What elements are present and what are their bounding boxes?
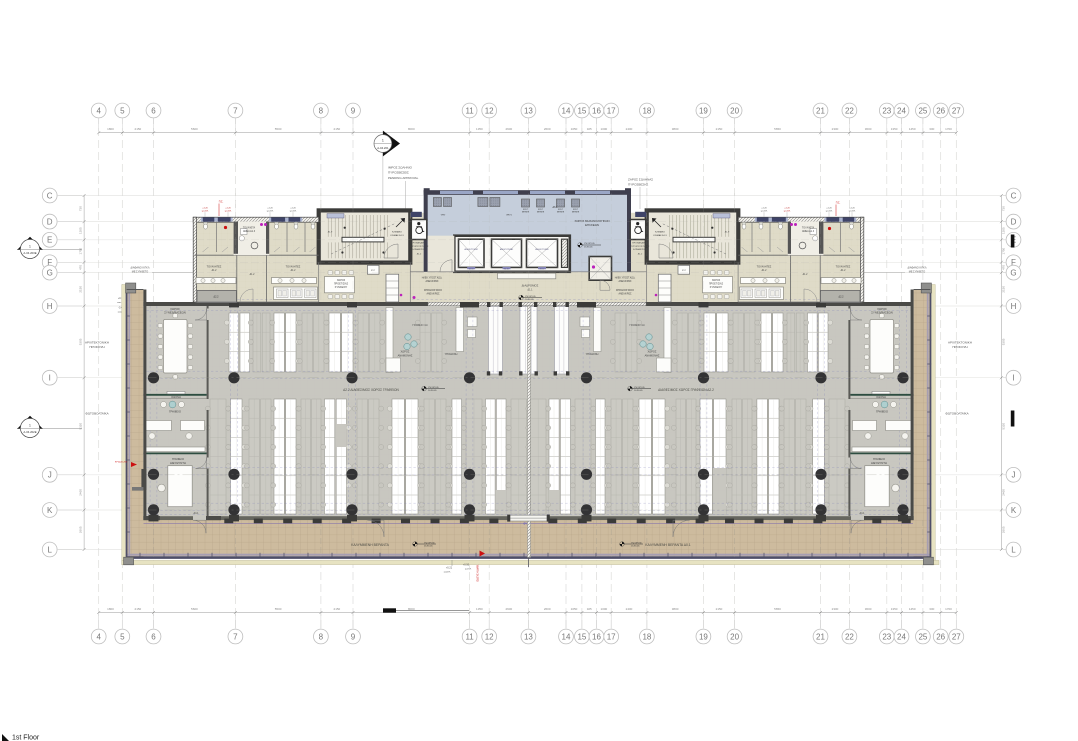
svg-text:12: 12 [485, 106, 494, 115]
svg-text:ΚΥΛΙΚΕΙΟΥ: ΚΥΛΙΚΕΙΟΥ [710, 286, 723, 289]
svg-text:ΚΥΛΙΚΕΙΟΥ: ΚΥΛΙΚΕΙΟΥ [335, 286, 348, 289]
svg-text:325: 325 [587, 127, 592, 131]
svg-text:23: 23 [882, 632, 891, 641]
svg-text:ΑΝΕΛΚΥΣΤΗΡΑΣ: ΑΝΕΛΚΥΣΤΗΡΑΣ [465, 248, 478, 251]
svg-text:8000: 8000 [408, 127, 415, 131]
svg-text:+4.20: +4.20 [225, 207, 231, 209]
svg-text:ψευδ/Λ: ψευδ/Λ [826, 209, 833, 212]
svg-text:ΠΥΡΟΣΒΕΣΕΙΣ: ΠΥΡΟΣΒΕΣΕΙΣ [388, 171, 409, 175]
svg-text:ΧΩΡΟΣ: ΧΩΡΟΣ [647, 350, 656, 354]
svg-text:ψευδ/Λ: ψευδ/Λ [849, 209, 856, 212]
svg-text:5305: 5305 [1002, 338, 1006, 345]
svg-text:ανεΠΛ: ανεΠΛ [465, 569, 472, 571]
svg-text:1700: 1700 [945, 607, 952, 611]
svg-text:2400: 2400 [626, 127, 633, 131]
svg-text:1050: 1050 [571, 127, 578, 131]
svg-text:ΗΛΕΚ.ΥΠΟΣΤ.ΚΩΔ.: ΗΛΕΚ.ΥΠΟΣΤ.ΚΩΔ. [615, 277, 636, 280]
svg-text:1: 1 [382, 139, 384, 143]
svg-text:D: D [1011, 217, 1017, 226]
svg-text:J: J [48, 471, 52, 480]
svg-text:Δ1.9: Δ1.9 [725, 231, 730, 234]
svg-text:ΑΝΕΛΚΥΣΤΗΡΑΣ: ΑΝΕΛΚΥΣΤΗΡΑΣ [535, 248, 548, 251]
svg-text:C: C [47, 191, 53, 200]
svg-text:2600: 2600 [505, 607, 512, 611]
svg-text:470: 470 [1002, 265, 1006, 270]
svg-text:ΟΔΕΥΣΗ ΔΙΑΦ.: ΟΔΕΥΣΗ ΔΙΑΦ. [477, 564, 480, 582]
svg-text:ΓΡΑΦΕΙΟ 1Ω: ΓΡΑΦΕΙΟ 1Ω [412, 323, 427, 327]
svg-text:+4.20: +4.20 [290, 207, 296, 209]
svg-text:D: D [47, 217, 53, 226]
svg-text:Δ2.2: Δ2.2 [839, 296, 845, 299]
svg-text:A-04.202Ε: A-04.202Ε [23, 430, 36, 434]
svg-text:7: 7 [233, 632, 238, 641]
svg-text:4: 4 [96, 106, 101, 115]
svg-text:22: 22 [845, 632, 854, 641]
svg-text:21: 21 [816, 106, 825, 115]
svg-text:H: H [1011, 302, 1017, 311]
svg-text:325: 325 [587, 607, 592, 611]
svg-text:Δ4.1: Δ4.1 [860, 512, 866, 515]
svg-text:ΑΝΑΜΟΝΗΣ: ΑΝΑΜΟΝΗΣ [398, 353, 413, 357]
svg-text:SERVER: SERVER [557, 212, 565, 214]
svg-text:2300: 2300 [832, 607, 839, 611]
svg-text:ψευδ/Λ: ψευδ/Λ [225, 209, 232, 212]
svg-text:17: 17 [607, 106, 616, 115]
svg-text:ΟΘΟΝΗ: ΟΘΟΝΗ [171, 395, 181, 399]
svg-text:13: 13 [524, 106, 533, 115]
svg-text:14: 14 [562, 106, 571, 115]
svg-text:ΔΙΑΘΕΣΙΜΟΣ ΧΩΡΟΣ ΓΡΑΦΕΙΩΝ Δ: ΔΙΑΘΕΣΙΜΟΣ ΧΩΡΟΣ ΓΡΑΦΕΙΩΝ Δ2.2 [658, 388, 714, 392]
svg-text:ΜΕ ΣΥΝΘΕΤΟ: ΜΕ ΣΥΝΘΕΤΟ [909, 270, 926, 273]
svg-text:18: 18 [642, 106, 651, 115]
svg-text:1000: 1000 [601, 127, 608, 131]
svg-text:5650: 5650 [774, 127, 781, 131]
svg-text:2150: 2150 [135, 607, 142, 611]
svg-text:3800: 3800 [672, 127, 679, 131]
svg-text:5320: 5320 [1002, 423, 1006, 430]
svg-text:ΤΟΥΑΛΗΤΕΣ: ΤΟΥΑΛΗΤΕΣ [757, 266, 772, 269]
svg-text:16: 16 [592, 632, 601, 641]
svg-text:ΔΙΑΔΡΟΜΟΣ: ΔΙΑΔΡΟΜΟΣ [522, 283, 539, 287]
svg-text:ΑΝΕΛΚΥΣΤΗΡΑΣ: ΑΝΕΛΚΥΣΤΗΡΑΣ [500, 248, 513, 251]
svg-text:ΚΛΙΜΑΚΟ: ΚΛΙΜΑΚΟ [655, 231, 665, 234]
svg-text:ψευδ/Λ: ψευδ/Λ [784, 209, 791, 212]
svg-text:Δ1.2: Δ1.2 [841, 269, 846, 272]
svg-text:ΑΡΧΙΤΕΚΤΟΝΙΚΗ: ΑΡΧΙΤΕΚΤΟΝΙΚΗ [948, 341, 972, 345]
svg-text:23: 23 [882, 106, 891, 115]
svg-text:15: 15 [577, 632, 586, 641]
svg-text:2600: 2600 [505, 127, 512, 131]
svg-text:27: 27 [952, 632, 961, 641]
svg-text:16.90.45: 16.90.45 [525, 299, 534, 301]
svg-text:ΠΡΟΘΑΛΑΜΟΣ: ΠΡΟΘΑΛΑΜΟΣ [411, 242, 427, 245]
svg-text:5600: 5600 [191, 127, 198, 131]
svg-text:ΖΑΡΟΣ ΣΩΛΗΝΑΣ: ΖΑΡΟΣ ΣΩΛΗΝΑΣ [628, 178, 653, 182]
svg-text:22: 22 [845, 106, 854, 115]
svg-text:300: 300 [929, 127, 934, 131]
svg-text:ΑΝΕΛΚ/ΡΩΣ: ΑΝΕΛΚ/ΡΩΣ [426, 293, 440, 296]
svg-text:27: 27 [952, 106, 961, 115]
svg-text:ΥΨ.ΟΡΟΦ.: ΥΨ.ΟΡΟΦ. [634, 386, 646, 389]
svg-text:16.90.45: 16.90.45 [634, 390, 643, 392]
svg-text:1450: 1450 [909, 607, 916, 611]
svg-text:1000: 1000 [601, 607, 608, 611]
svg-text:730: 730 [1002, 206, 1006, 211]
svg-text:3600: 3600 [865, 607, 872, 611]
svg-text:ΓΡΑΦΕΙΟ 1Ω: ΓΡΑΦΕΙΟ 1Ω [629, 323, 644, 327]
svg-text:ΑΝΑΜΟΝΗΣ: ΑΝΑΜΟΝΗΣ [645, 353, 660, 357]
svg-text:5: 5 [120, 106, 125, 115]
svg-text:+0.50: +0.50 [463, 564, 470, 567]
svg-text:VRV1: VRV1 [506, 215, 512, 217]
svg-text:2150: 2150 [716, 607, 723, 611]
svg-text:L: L [47, 545, 52, 554]
svg-text:ΥΨ.ΟΡΟΦ.: ΥΨ.ΟΡΟΦ. [584, 242, 596, 245]
svg-text:470: 470 [79, 265, 83, 270]
svg-text:ΗΛΕΚ.ΥΠΟΣΤ.ΚΩΔ.: ΗΛΕΚ.ΥΠΟΣΤ.ΚΩΔ. [422, 277, 443, 280]
svg-text:ΥΨ.ΟΡΟΦ.: ΥΨ.ΟΡΟΦ. [631, 542, 643, 545]
svg-text:5500: 5500 [275, 607, 282, 611]
svg-text:2600: 2600 [544, 607, 551, 611]
svg-text:21: 21 [816, 632, 825, 641]
svg-text:ΜΗΧΑΝΟΣΤΑΣΙΟ: ΜΗΧΑΝΟΣΤΑΣΙΟ [616, 289, 634, 292]
svg-text:1800: 1800 [107, 127, 114, 131]
svg-text:ΔΙΕΥΘΥΝΤΗ: ΔΙΕΥΘΥΝΤΗ [170, 461, 186, 465]
svg-text:2150: 2150 [135, 127, 142, 131]
svg-text:1050: 1050 [571, 607, 578, 611]
svg-text:ΚΑΛΥΜΜΕΝΗ ΒΕΡΑΝΤΑ Δ0.1: ΚΑΛΥΜΜΕΝΗ ΒΕΡΑΝΤΑ Δ0.1 [645, 543, 691, 547]
svg-text:8: 8 [319, 632, 324, 641]
svg-text:ΓΡΑΦΕΙΟ: ΓΡΑΦΕΙΟ [169, 410, 182, 414]
svg-text:1305: 1305 [1002, 227, 1006, 234]
svg-text:K: K [1011, 506, 1017, 515]
svg-text:6: 6 [151, 106, 156, 115]
svg-text:ΠΥΡΟΠΡΟΣΤ/ΣΙΑΣ: ΠΥΡΟΠΡΟΣΤ/ΣΙΑΣ [630, 245, 650, 248]
svg-text:L: L [1011, 545, 1016, 554]
svg-text:ΤΟΥΑΛΗΤΕΣ: ΤΟΥΑΛΗΤΕΣ [286, 266, 301, 269]
svg-text:ΔΙΑΦΑΝΟ ΚΙΓΚΛ: ΔΙΑΦΑΝΟ ΚΙΓΚΛ [130, 266, 149, 269]
svg-text:ΦΩΤΟΒΟΛΤΑΪΚΑ: ΦΩΤΟΒΟΛΤΑΪΚΑ [945, 412, 968, 416]
svg-text:Δ1.2: Δ1.2 [762, 269, 767, 272]
svg-text:3600: 3600 [865, 127, 872, 131]
svg-text:1750: 1750 [79, 247, 83, 254]
svg-text:5650: 5650 [774, 607, 781, 611]
svg-text:2600: 2600 [544, 127, 551, 131]
svg-text:ΟΘΟΝΗ: ΟΘΟΝΗ [876, 395, 886, 399]
svg-text:ΜΗΧΑΝΟΣΤΑΣΙΟ: ΜΗΧΑΝΟΣΤΑΣΙΟ [424, 289, 442, 292]
svg-text:ΚΛΙΜΑΚ Δ1.3: ΚΛΙΜΑΚ Δ1.3 [390, 234, 404, 237]
svg-text:2460: 2460 [1002, 489, 1006, 496]
svg-text:ΚΡ Α-05.250: ΚΡ Α-05.250 [115, 461, 128, 464]
svg-text:C: C [1011, 191, 1017, 200]
svg-text:9: 9 [351, 632, 356, 641]
svg-text:17: 17 [607, 632, 616, 641]
svg-text:ΠΡΟΣΟΨΗ: ΠΡΟΣΟΨΗ [89, 345, 104, 349]
svg-text:Δ2.2: Δ2.2 [214, 296, 220, 299]
svg-text:ΔΙΑΦΑΝΟ ΚΙΓΚΛ: ΔΙΑΦΑΝΟ ΚΙΓΚΛ [907, 266, 926, 269]
svg-text:1350: 1350 [476, 607, 483, 611]
svg-text:+4.20: +4.20 [267, 207, 273, 209]
svg-text:SERVER: SERVER [572, 212, 580, 214]
svg-text:PENDING APPROVAL: PENDING APPROVAL [388, 176, 419, 180]
svg-text:SERVER: SERVER [537, 212, 545, 214]
svg-text:19: 19 [699, 632, 708, 641]
svg-text:7: 7 [233, 106, 238, 115]
svg-text:ΑΜΕΑ Δ1.3: ΑΜΕΑ Δ1.3 [243, 230, 256, 233]
svg-text:1: 1 [29, 424, 31, 428]
svg-text:Δ1.10: Δ1.10 [540, 267, 544, 270]
svg-text:ΚΛΙΜΑΚΟ: ΚΛΙΜΑΚΟ [392, 231, 402, 234]
svg-text:13: 13 [524, 632, 533, 641]
svg-text:G: G [47, 268, 53, 277]
svg-text:2665: 2665 [1002, 526, 1006, 533]
svg-text:9: 9 [351, 106, 356, 115]
svg-text:+4.20: +4.20 [202, 207, 208, 209]
svg-text:1350: 1350 [891, 607, 898, 611]
svg-text:19: 19 [699, 106, 708, 115]
svg-text:+4.20: +4.20 [761, 207, 767, 209]
svg-text:16.90.45: 16.90.45 [428, 390, 437, 392]
svg-text:ΧΩΡΟΣ: ΧΩΡΟΣ [400, 350, 409, 354]
svg-text:2300: 2300 [832, 127, 839, 131]
svg-text:ψευδ/Λ: ψευδ/Λ [290, 209, 297, 212]
svg-text:1450: 1450 [909, 127, 916, 131]
svg-text:ΚΛΙΜΑΚ Δ1.3: ΚΛΙΜΑΚ Δ1.3 [653, 234, 667, 237]
svg-text:Δ1.10: Δ1.10 [504, 267, 508, 270]
svg-text:ΠΡΟΘΑΛΑΜΟΣ: ΠΡΟΘΑΛΑΜΟΣ [632, 242, 648, 245]
svg-text:ΑΝΕΛΚ/ΡΩΣ: ΑΝΕΛΚ/ΡΩΣ [618, 280, 632, 283]
svg-text:ΔΙΕΥΘΥΝΤΗ: ΔΙΕΥΘΥΝΤΗ [871, 461, 887, 465]
svg-text:1800: 1800 [107, 607, 114, 611]
svg-text:Δ6.1: Δ6.1 [553, 206, 559, 209]
svg-text:2150: 2150 [1002, 286, 1006, 293]
svg-text:16: 16 [592, 106, 601, 115]
svg-text:E: E [47, 236, 52, 245]
svg-text:ΕΓΚ/ΣΕΩΝ: ΕΓΚ/ΣΕΩΝ [585, 223, 599, 227]
svg-text:16.90.45: 16.90.45 [631, 546, 640, 548]
svg-text:16.90.45: 16.90.45 [424, 546, 433, 548]
svg-text:2150: 2150 [334, 607, 341, 611]
svg-text:K: K [47, 506, 53, 515]
svg-text:Δ1.2: Δ1.2 [417, 253, 422, 256]
svg-text:Δ1.2: Δ1.2 [250, 273, 255, 276]
svg-text:I: I [1012, 374, 1014, 383]
svg-text:ΚΑΛΥΜΜΕΝΗ ΒΕΡΑΝΤΑ: ΚΑΛΥΜΜΕΝΗ ΒΕΡΑΝΤΑ [351, 543, 390, 547]
svg-text:ΣΥΝΕΔΡΙΑΣΕΩΝ: ΣΥΝΕΔΡΙΑΣΕΩΝ [164, 311, 186, 315]
svg-text:ψευδ/Λ: ψευδ/Λ [202, 209, 209, 212]
svg-text:ψευδ/Λ: ψευδ/Λ [761, 209, 768, 212]
svg-text:18: 18 [642, 632, 651, 641]
svg-text:ΙΜΡΟΣ ΣΩΛΗΝΙΟ: ΙΜΡΟΣ ΣΩΛΗΝΙΟ [388, 166, 413, 170]
svg-text:24: 24 [897, 632, 906, 641]
svg-text:6: 6 [151, 632, 156, 641]
svg-text:5600: 5600 [191, 607, 198, 611]
svg-text:Π.Σ.: Π.Σ. [219, 201, 224, 204]
svg-text:1st Floor: 1st Floor [12, 735, 40, 741]
svg-text:5305: 5305 [79, 338, 83, 345]
svg-text:+4.20: +4.20 [849, 207, 855, 209]
svg-text:11: 11 [465, 106, 474, 115]
svg-text:ΣΥΝΕΔΡΙΑΣΕΩΝ: ΣΥΝΕΔΡΙΑΣΕΩΝ [871, 311, 893, 315]
svg-text:ΚΛΙΜΑΚ/ΣΙΟΥ: ΚΛΙΜΑΚ/ΣΙΟΥ [633, 248, 647, 251]
svg-text:25: 25 [918, 106, 927, 115]
svg-text:Δ1.2: Δ1.2 [212, 269, 217, 272]
svg-text:ΥΠΟΔΟΧΗ: ΥΠΟΔΟΧΗ [586, 352, 599, 356]
svg-text:+4.20: +4.20 [784, 207, 790, 209]
svg-text:1350: 1350 [476, 127, 483, 131]
svg-text:Δ2.2 ΔΙΑΘΕΣΙΜΟΣ ΧΩΡΟΣ ΓΡΑΦΕ: Δ2.2 ΔΙΑΘΕΣΙΜΟΣ ΧΩΡΟΣ ΓΡΑΦΕΙΩΝ [343, 388, 399, 392]
svg-text:I: I [49, 374, 51, 383]
svg-text:11: 11 [465, 632, 474, 641]
svg-text:14: 14 [562, 632, 571, 641]
svg-text:1350: 1350 [891, 127, 898, 131]
svg-text:3800: 3800 [672, 607, 679, 611]
svg-text:1: 1 [29, 245, 31, 249]
svg-text:20: 20 [730, 106, 739, 115]
svg-text:Δ1.10: Δ1.10 [469, 267, 473, 270]
svg-text:5: 5 [120, 632, 125, 641]
svg-text:ΑΡΧΙΤΕΚΤΟΝΙΚΗ: ΑΡΧΙΤΕΚΤΟΝΙΚΗ [85, 341, 109, 345]
svg-text:Δ1.2: Δ1.2 [291, 269, 296, 272]
svg-text:24: 24 [897, 106, 906, 115]
svg-text:ΠΥΡΟΠΡΟΣΤ/ΣΙΑΣ: ΠΥΡΟΠΡΟΣΤ/ΣΙΑΣ [409, 245, 429, 248]
svg-text:ΥΨ.ΟΡΟΦ.: ΥΨ.ΟΡΟΦ. [525, 295, 537, 298]
svg-text:+4.20: +4.20 [826, 207, 832, 209]
svg-text:SERVER: SERVER [522, 212, 530, 214]
svg-text:ΥΨ.ΟΡΟΦ.: ΥΨ.ΟΡΟΦ. [428, 386, 440, 389]
svg-text:15: 15 [577, 106, 586, 115]
svg-text:Π.Σ.: Π.Σ. [836, 202, 841, 205]
svg-text:2665: 2665 [79, 526, 83, 533]
svg-text:1750: 1750 [1002, 247, 1006, 254]
svg-text:2150: 2150 [334, 127, 341, 131]
svg-text:ΜΕ ΣΥΝΘΕΤΟ: ΜΕ ΣΥΝΘΕΤΟ [132, 270, 149, 273]
svg-text:ΦΩΤΟΒΟΛΤΑΪΚΑ: ΦΩΤΟΒΟΛΤΑΪΚΑ [85, 412, 108, 416]
svg-text:16.90.45: 16.90.45 [584, 246, 593, 248]
svg-text:Δ1.9: Δ1.9 [328, 231, 333, 234]
svg-text:26: 26 [936, 632, 945, 641]
svg-text:A-04.203Ε: A-04.203Ε [23, 251, 36, 255]
svg-text:2150: 2150 [716, 127, 723, 131]
svg-text:26: 26 [936, 106, 945, 115]
svg-text:730: 730 [79, 206, 83, 211]
svg-text:Δ1.2: Δ1.2 [638, 253, 643, 256]
svg-text:2460: 2460 [79, 489, 83, 496]
svg-text:ΤΟΥΑΛΗΤΕΣ: ΤΟΥΑΛΗΤΕΣ [836, 266, 851, 269]
svg-text:ΚΛΙΜΑΚ/ΣΙΟΥ: ΚΛΙΜΑΚ/ΣΙΟΥ [412, 248, 426, 251]
svg-text:ΠΡΟΣΟΨΗ: ΠΡΟΣΟΨΗ [952, 345, 967, 349]
svg-text:ανηΠΛ: ανηΠΛ [444, 572, 451, 574]
svg-text:12: 12 [485, 632, 494, 641]
svg-text:25: 25 [918, 632, 927, 641]
svg-text:1305: 1305 [79, 227, 83, 234]
svg-text:ΓΡΑΦΕΙΟ: ΓΡΑΦΕΙΟ [876, 410, 889, 414]
svg-text:2150: 2150 [79, 286, 83, 293]
svg-text:H: H [47, 302, 53, 311]
svg-text:1700: 1700 [945, 127, 952, 131]
svg-text:Δ1.2: Δ1.2 [803, 273, 808, 276]
svg-text:ΥΨ.ΟΡΟΦ.: ΥΨ.ΟΡΟΦ. [424, 542, 436, 545]
svg-text:+0.21: +0.21 [446, 567, 453, 570]
svg-text:ΑΝΕΛΚ/ΡΩΣ: ΑΝΕΛΚ/ΡΩΣ [425, 280, 439, 283]
svg-text:G: G [1010, 268, 1016, 277]
svg-text:VRV: VRV [441, 215, 446, 217]
svg-text:4: 4 [96, 632, 101, 641]
svg-text:ψευδ/Λ: ψευδ/Λ [267, 209, 274, 212]
svg-text:ΠΥΡΟΣΒΕΣΗΣ: ΠΥΡΟΣΒΕΣΗΣ [628, 183, 648, 187]
svg-text:J: J [1012, 471, 1016, 480]
svg-text:ΤΟΥΑΛΗΤΕΣ: ΤΟΥΑΛΗΤΕΣ [207, 266, 222, 269]
svg-text:2400: 2400 [626, 607, 633, 611]
svg-text:ΑΝΕΛΚ/ΡΩΣ: ΑΝΕΛΚ/ΡΩΣ [618, 293, 632, 296]
svg-text:300: 300 [929, 607, 934, 611]
svg-text:20: 20 [730, 632, 739, 641]
svg-text:Δ4.1: Δ4.1 [194, 512, 200, 515]
svg-text:5500: 5500 [275, 127, 282, 131]
svg-text:ΥΠΟΔΟΧΗ: ΥΠΟΔΟΧΗ [445, 352, 458, 356]
svg-text:ΑΜΕΑ Δ1.3: ΑΜΕΑ Δ1.3 [802, 230, 815, 233]
svg-text:8: 8 [319, 106, 324, 115]
svg-text:A-04.201: A-04.201 [377, 146, 389, 150]
